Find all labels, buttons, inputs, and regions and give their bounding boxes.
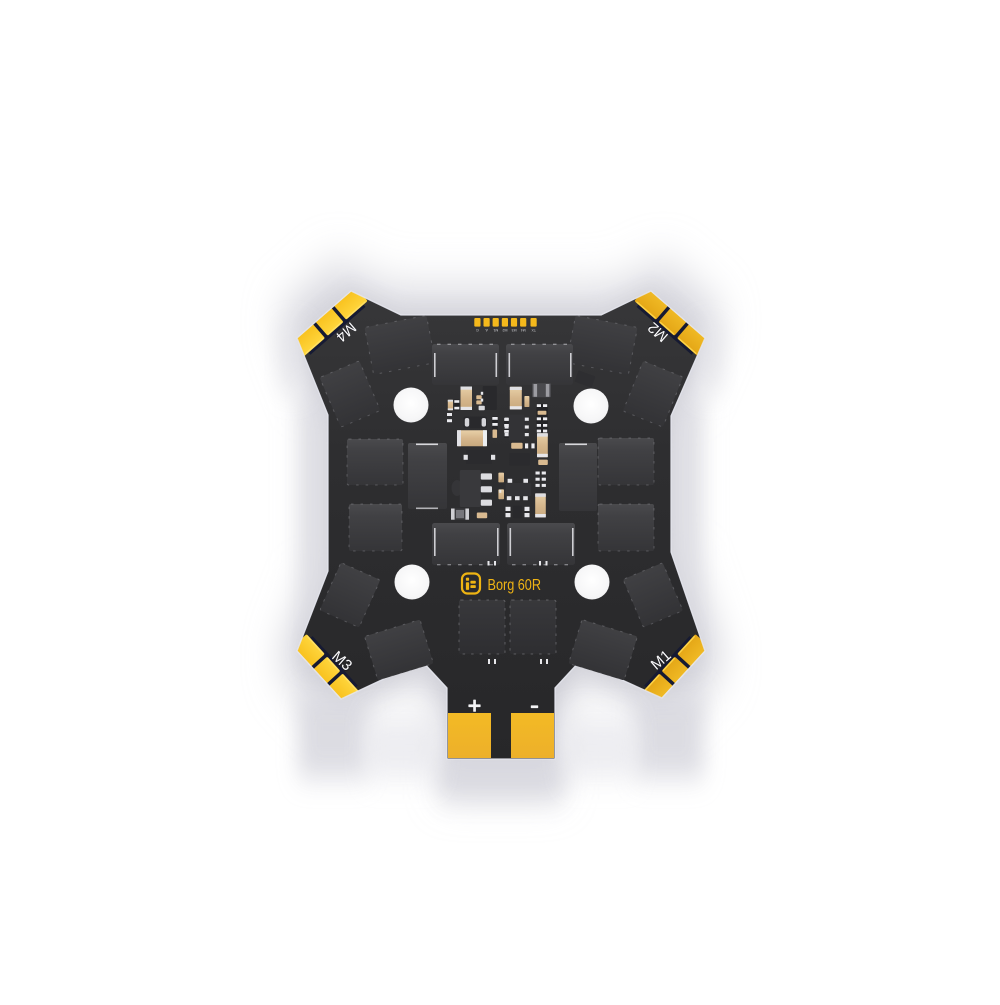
svg-text:M1: M1	[493, 328, 498, 332]
svg-text:Borg 60R: Borg 60R	[488, 577, 542, 594]
svg-text:TX: TX	[531, 328, 536, 332]
svg-text:M2: M2	[503, 328, 508, 332]
svg-text:M3: M3	[512, 328, 517, 332]
svg-text:G: G	[476, 328, 479, 332]
svg-text:M4: M4	[521, 328, 526, 332]
